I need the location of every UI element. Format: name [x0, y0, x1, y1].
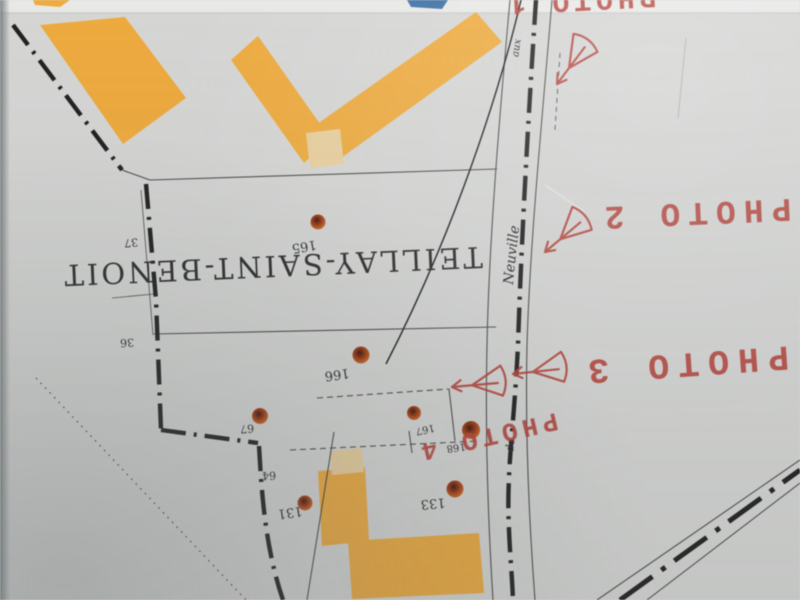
photo-surface: TEILLAY-SAINT-BENOIT 165 166 167 168 133… — [0, 0, 800, 600]
bottom-shade — [0, 0, 800, 600]
cadastral-map-svg: TEILLAY-SAINT-BENOIT 165 166 167 168 133… — [0, 0, 800, 600]
photo-left-edge — [0, 0, 10, 600]
map-photo: TEILLAY-SAINT-BENOIT 165 166 167 168 133… — [0, 0, 800, 600]
